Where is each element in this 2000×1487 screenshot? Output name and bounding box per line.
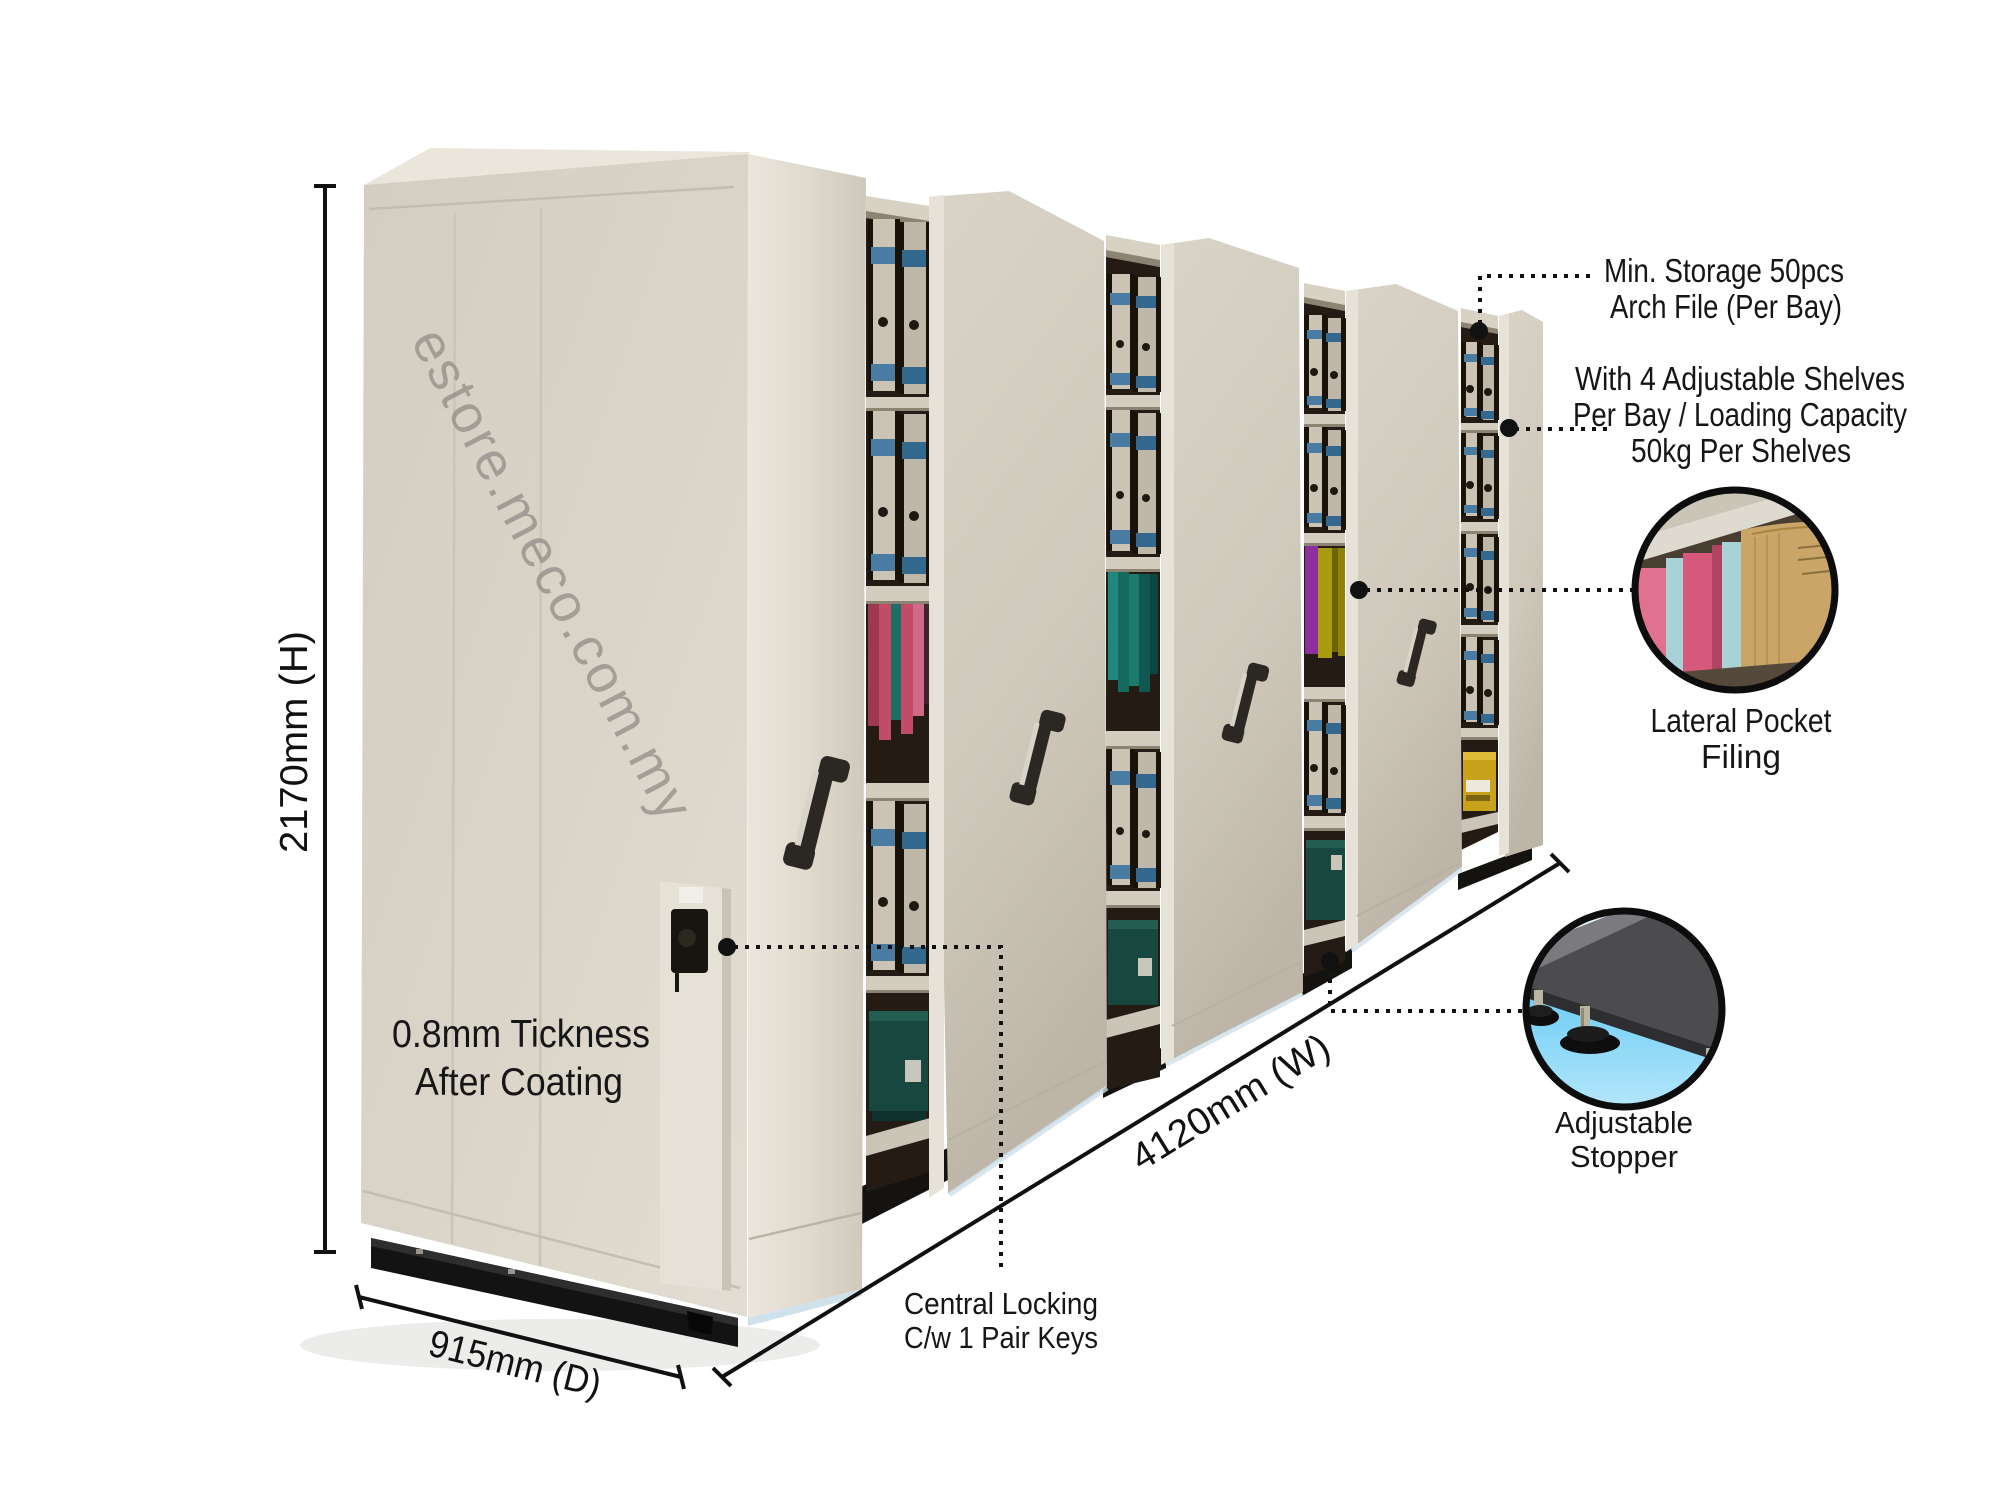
svg-text:Min. Storage 50pcs: Min. Storage 50pcs xyxy=(1604,252,1844,289)
svg-text:Per Bay / Loading Capacity: Per Bay / Loading Capacity xyxy=(1573,396,1907,433)
svg-text:With 4 Adjustable Shelves: With 4 Adjustable Shelves xyxy=(1575,360,1905,397)
svg-text:Adjustable: Adjustable xyxy=(1555,1105,1693,1140)
svg-text:50kg Per Shelves: 50kg Per Shelves xyxy=(1631,432,1851,469)
svg-text:2170mm (H): 2170mm (H) xyxy=(273,631,316,853)
svg-text:Stopper: Stopper xyxy=(1570,1139,1678,1174)
svg-text:Arch File (Per Bay): Arch File (Per Bay) xyxy=(1610,288,1842,325)
svg-text:Filing: Filing xyxy=(1701,738,1781,775)
svg-text:Lateral Pocket: Lateral Pocket xyxy=(1651,702,1832,739)
svg-text:0.8mm Tickness: 0.8mm Tickness xyxy=(392,1013,650,1056)
svg-text:After Coating: After Coating xyxy=(415,1061,623,1104)
svg-text:Central Locking: Central Locking xyxy=(904,1286,1098,1321)
svg-text:C/w 1 Pair Keys: C/w 1 Pair Keys xyxy=(904,1320,1098,1355)
